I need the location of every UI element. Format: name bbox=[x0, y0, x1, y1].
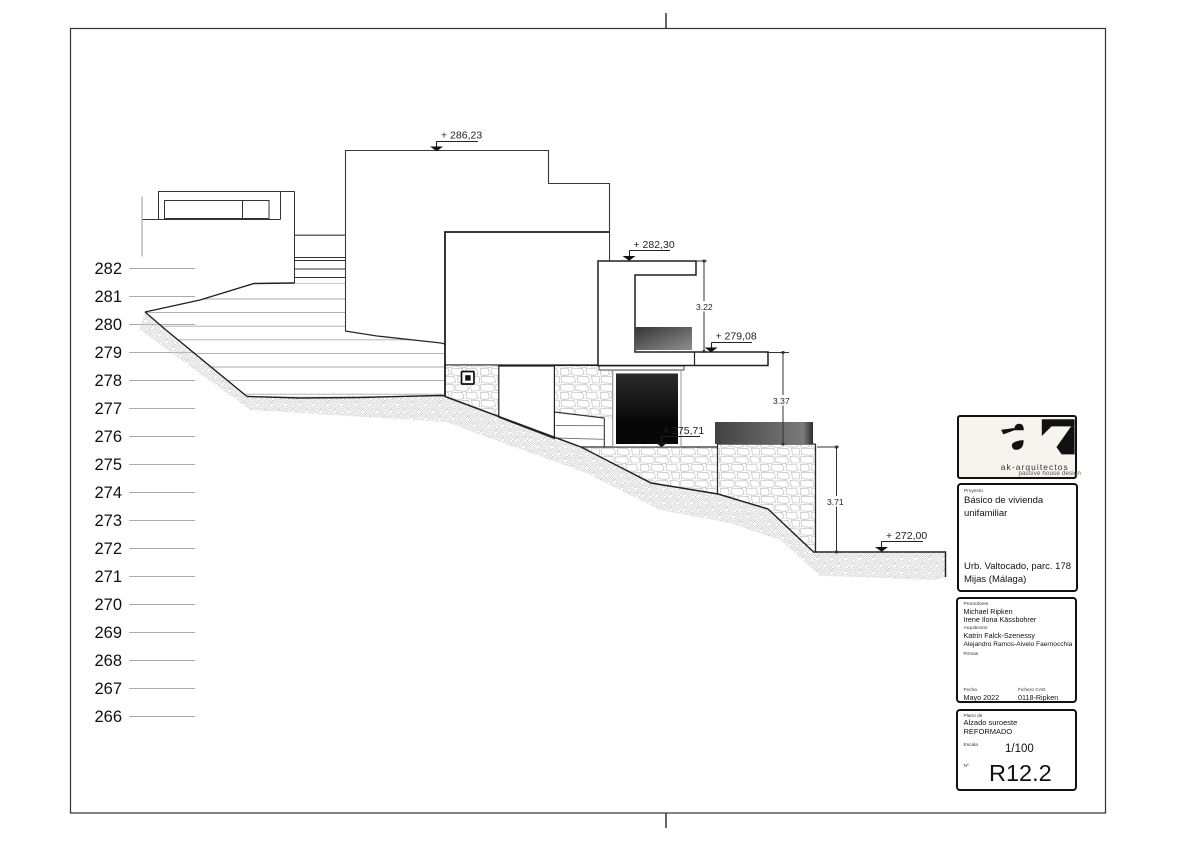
svg-text:276: 276 bbox=[94, 428, 122, 446]
svg-text:+ 282,30: + 282,30 bbox=[634, 239, 675, 251]
svg-text:274: 274 bbox=[94, 484, 122, 502]
svg-text:268: 268 bbox=[94, 652, 122, 670]
svg-text:280: 280 bbox=[94, 316, 122, 334]
svg-text:266: 266 bbox=[94, 708, 122, 726]
svg-text:281: 281 bbox=[94, 288, 122, 306]
svg-text:3.71: 3.71 bbox=[827, 497, 844, 507]
svg-text:270: 270 bbox=[94, 596, 122, 614]
svg-text:275: 275 bbox=[94, 456, 122, 474]
svg-text:279: 279 bbox=[94, 344, 122, 362]
svg-text:271: 271 bbox=[94, 568, 122, 586]
svg-text:272: 272 bbox=[94, 540, 122, 558]
svg-text:+ 272,00: + 272,00 bbox=[886, 530, 927, 542]
svg-text:269: 269 bbox=[94, 624, 122, 642]
svg-text:3.22: 3.22 bbox=[696, 302, 713, 312]
svg-text:+ 275,71: + 275,71 bbox=[663, 425, 704, 437]
svg-text:267: 267 bbox=[94, 680, 122, 698]
svg-text:277: 277 bbox=[94, 400, 122, 418]
svg-text:+ 279,08: + 279,08 bbox=[716, 331, 757, 343]
svg-text:+ 286,23: + 286,23 bbox=[441, 130, 482, 142]
svg-text:3.37: 3.37 bbox=[773, 396, 790, 406]
svg-text:273: 273 bbox=[94, 512, 122, 530]
svg-text:278: 278 bbox=[94, 372, 122, 390]
svg-text:282: 282 bbox=[94, 260, 122, 278]
